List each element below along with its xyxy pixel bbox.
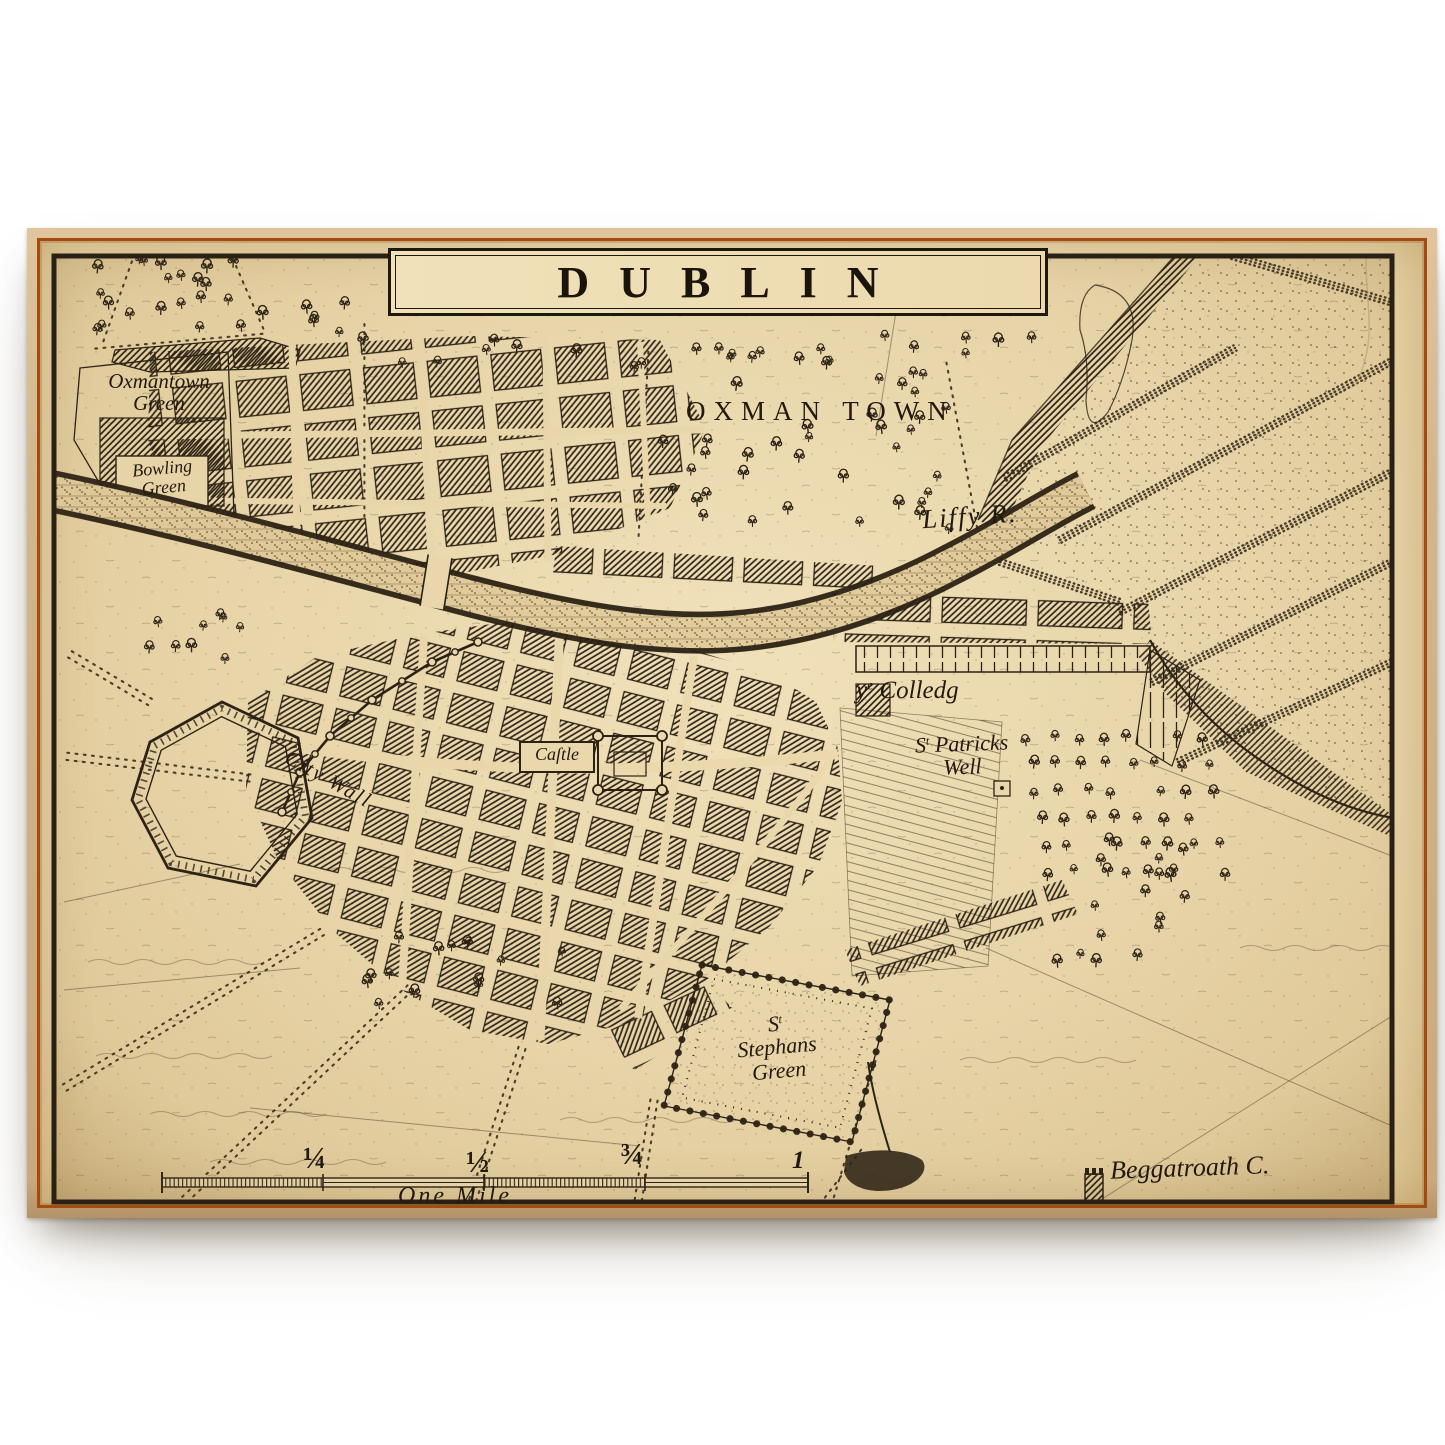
product-photo: DUBLIN Oxmantown Green Bowling Green OXM…: [0, 0, 1445, 1445]
map-title: DUBLIN: [527, 257, 908, 308]
map-title-cartouche: DUBLIN: [388, 248, 1048, 316]
map-engraving: [0, 0, 1445, 1445]
title-inner-border: DUBLIN: [395, 255, 1041, 309]
